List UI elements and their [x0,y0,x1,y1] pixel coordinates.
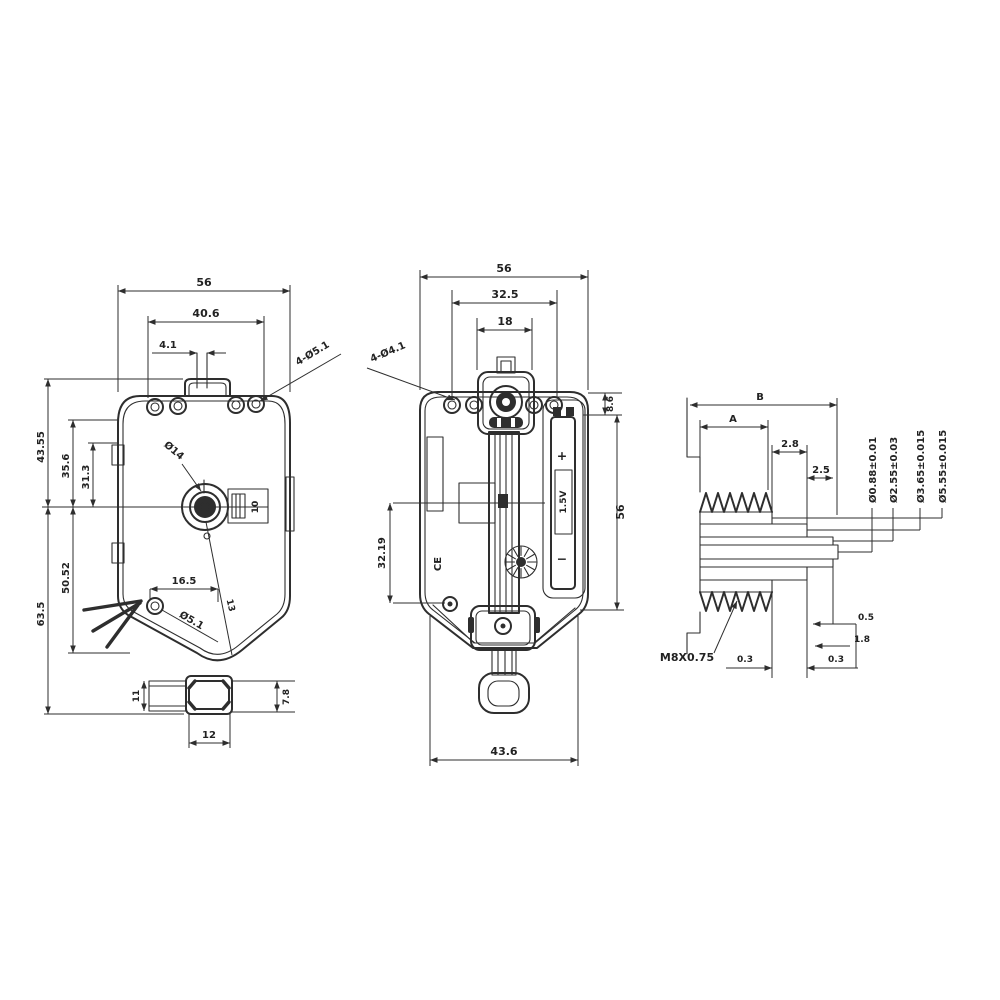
dim-front-width-inner: 40.6 [192,307,219,320]
detail-view: Ø0.88±0.01 Ø2.55±0.03 Ø3.65±0.015 Ø5.55±… [660,392,949,678]
core-shaft [700,545,838,559]
drive-gear [505,546,537,578]
pendulum-loop [479,673,529,713]
dim-front-50-52: 50.52 [61,562,72,594]
label-dia-core: Ø0.88±0.01 [867,437,879,503]
pivot [443,597,457,611]
dim-detail-a: A [729,414,737,425]
label-side-top-holes: 4-Ø4.1 [368,339,407,365]
dim-front-13: 13 [224,598,237,613]
dim-front-width-top: 56 [196,276,212,289]
dim-side-width-top: 56 [496,262,512,275]
side-view: + 1.5V − CE [367,262,627,766]
front-body [42,353,294,714]
side-hanger-assembly [468,606,540,713]
battery-contact [566,407,574,416]
battery-plus-mark: + [557,448,567,463]
dim-side-top-offset: 8.6 [606,396,616,412]
knurl-band [700,512,772,524]
dim-front-hanger-width: 12 [202,730,216,741]
dim-detail-1-8: 1.8 [854,635,870,645]
label-front-top-holes: 4-Ø5.1 [293,339,331,369]
dim-front-slot: 4.1 [159,340,177,351]
boss-detail [228,489,268,523]
dim-front-35-6: 35.6 [61,454,72,479]
thread-teeth-bottom [700,592,772,611]
dim-front-boss: 10 [251,501,261,514]
dim-front-31-3: 31.3 [81,465,92,490]
setting-knob [478,357,534,434]
front-view: 56 40.6 4.1 4-Ø5.1 43.55 63.5 3 [36,276,341,748]
sleeve-band [700,567,807,580]
pendulum-hole [147,598,163,614]
dim-detail-0-3-right: 0.3 [828,655,844,665]
spring-arms [84,601,141,647]
dim-front-tab: 11 [132,690,142,703]
front-hanger-block [149,676,232,714]
dim-front-lower-height: 63.5 [36,602,47,627]
screenshot-canvas: 56 40.6 4.1 4-Ø5.1 43.55 63.5 3 [0,0,1000,1000]
dim-detail-2-5: 2.5 [812,465,830,476]
side-label-strip [427,437,443,511]
label-dia-3: Ø3.65±0.015 [915,430,927,503]
label-dia-4: Ø5.55±0.015 [937,430,949,503]
ce-mark: CE [433,557,444,571]
engineering-drawing: 56 40.6 4.1 4-Ø5.1 43.55 63.5 3 [0,0,1000,1000]
label-detail-thread: M8X0.75 [660,651,714,664]
dim-side-width-inner: 32.5 [491,288,518,301]
dim-side-height: 56 [614,504,627,520]
dim-front-hole-offset: 16.5 [172,576,197,587]
dim-side-knob: 18 [497,315,512,328]
dim-detail-0-5: 0.5 [858,613,874,623]
detail-outline [687,398,838,678]
battery-minus-mark: − [557,551,567,566]
dim-detail-0-3-left: 0.3 [737,655,753,665]
dim-detail-2-8: 2.8 [781,439,799,450]
thread-teeth-top [700,493,772,512]
front-mounting-holes [147,396,264,415]
dim-front-hanger-height: 7.8 [282,689,292,705]
battery-compartment: + 1.5V − [543,400,585,598]
sleeve-band [700,524,807,537]
knurl-band [700,580,772,592]
battery-contact [553,407,561,416]
dim-side-shaft-span: 32.19 [377,537,388,569]
dim-front-upper-height: 43.55 [36,431,47,463]
label-front-shaft-dia: Ø14 [161,439,186,463]
battery-voltage-label: 1.5V [559,491,569,514]
side-body: + 1.5V − CE [393,357,588,713]
label-front-hole-dia: Ø5.1 [177,609,206,633]
dim-detail-b: B [756,392,764,403]
label-dia-2: Ø2.55±0.03 [888,437,900,503]
dim-side-bottom-width: 43.6 [490,745,517,758]
